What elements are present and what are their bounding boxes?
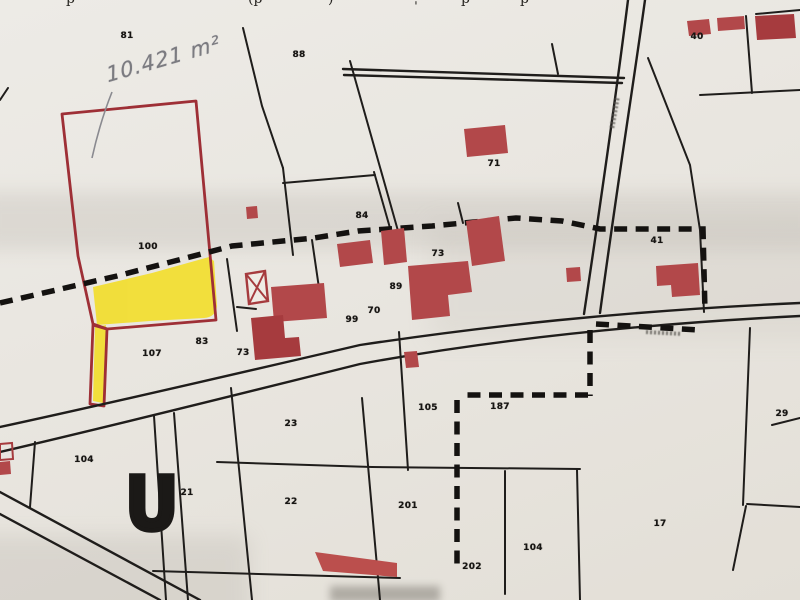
- parcel-label-40: 40: [690, 32, 703, 42]
- building: [466, 216, 505, 266]
- parcel-label-21: 21: [180, 488, 193, 498]
- red-road-wedge: [315, 552, 397, 577]
- parcel-label-81: 81: [120, 31, 133, 41]
- building: [717, 16, 745, 31]
- scanned-cadastral-map: p(p)ˌpp 81884071841004173897099107837323…: [0, 0, 800, 600]
- parcel-label-22: 22: [284, 497, 297, 507]
- building: [408, 261, 472, 320]
- u-handmark: U: [125, 468, 179, 542]
- parcel-label-187: 187: [490, 402, 510, 412]
- parcel-label-23: 23: [284, 419, 297, 429]
- parcel-label-71: 71: [487, 159, 500, 169]
- building: [381, 228, 407, 265]
- caption-fragment: p: [461, 0, 470, 7]
- caption-fragment: ): [328, 0, 333, 7]
- caption-fragment: p: [66, 0, 75, 7]
- caption-fragment: (p: [248, 0, 262, 7]
- parcel-label-105: 105: [418, 403, 438, 413]
- building: [404, 351, 419, 368]
- parcel-label-70: 70: [367, 306, 380, 316]
- parcel-label-104: 104: [523, 543, 543, 553]
- parcel-label-41: 41: [650, 236, 663, 246]
- parcel-label-202: 202: [462, 562, 482, 572]
- parcel-label-107: 107: [142, 349, 162, 359]
- caption-fragment: p: [520, 0, 529, 7]
- building: [755, 14, 796, 40]
- parcel-label-29: 29: [775, 409, 788, 419]
- building: [0, 461, 11, 475]
- building: [464, 125, 508, 157]
- parcel-label-73: 73: [431, 249, 444, 259]
- parcel-label-201: 201: [398, 501, 418, 511]
- parcel-label-88: 88: [292, 50, 305, 60]
- parcel-label-73: 73: [236, 348, 249, 358]
- parcel-label-83: 83: [195, 337, 208, 347]
- caption-fragment: ˌ: [414, 0, 418, 7]
- parcel-label-84: 84: [355, 211, 368, 221]
- parcel-label-89: 89: [389, 282, 402, 292]
- parcel-label-99: 99: [345, 315, 358, 325]
- parcel-label-17: 17: [653, 519, 666, 529]
- building: [251, 315, 301, 360]
- parcel-label-100: 100: [138, 242, 158, 252]
- parcel-label-104: 104: [74, 455, 94, 465]
- crossed-box-building: [246, 271, 268, 304]
- pencil-leader-line: [92, 92, 112, 158]
- building: [246, 206, 258, 219]
- building: [656, 263, 700, 297]
- building: [566, 267, 581, 282]
- building: [337, 240, 373, 267]
